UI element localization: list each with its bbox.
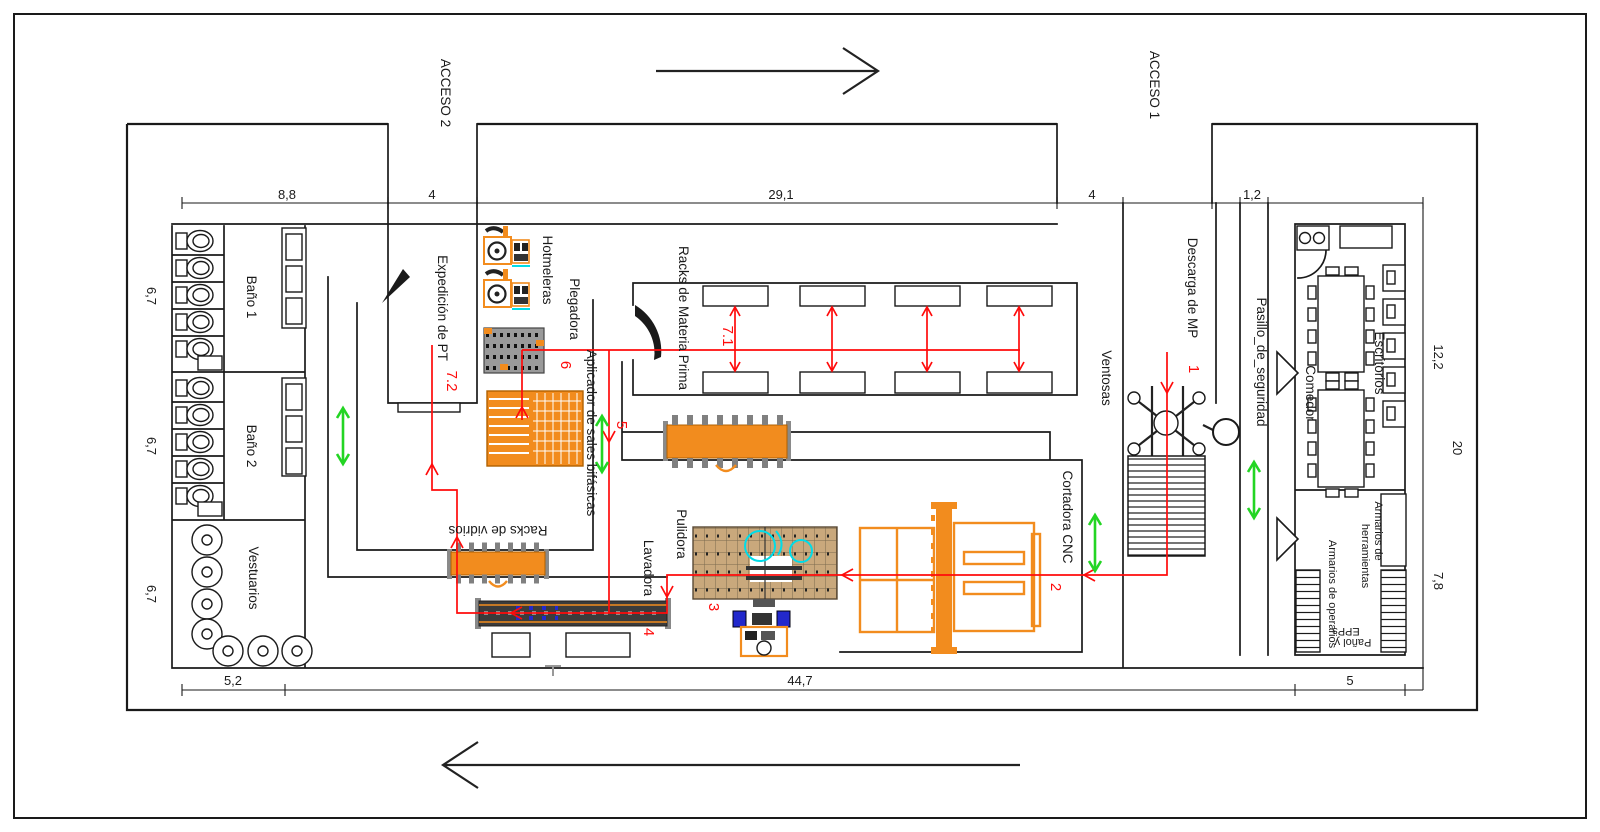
- panol-label-2: EPPs: [1332, 625, 1360, 637]
- dim-left-1: 6,7: [144, 437, 159, 455]
- dim-right-0: 12,2: [1431, 344, 1446, 369]
- expedicion-label: Expedición de PT: [435, 255, 450, 361]
- dim-top-3: 4: [1088, 187, 1095, 202]
- dim-top-2: 29,1: [768, 187, 793, 202]
- step-label-4: 4: [640, 628, 657, 636]
- step-label-7-1: 7.1: [719, 326, 736, 347]
- pulidora-label: Pulidora: [674, 509, 689, 559]
- acceso-1-label: ACCESO 1: [1147, 51, 1162, 119]
- armarios-herramientas-label-1: Armarios de: [1372, 501, 1384, 560]
- dim-top-4: 1,2: [1243, 187, 1261, 202]
- aplicador-label: Aplicador de sales bifásicas: [584, 350, 599, 517]
- dim-top-1: 4: [428, 187, 435, 202]
- ventosas-label: Ventosas: [1099, 350, 1114, 406]
- aplicador-machine: [487, 391, 583, 466]
- hotmeleras-label: Hotmeleras: [540, 235, 555, 304]
- bano1-label: Baño 1: [244, 276, 259, 319]
- comedor-label: Comedor: [1303, 365, 1318, 421]
- racks-mp-label: Racks de Materia Prima: [676, 246, 691, 391]
- plegadora-label: Plegadora: [567, 278, 582, 340]
- step-label-1: 1: [1185, 365, 1202, 373]
- dim-right-1: 20: [1450, 441, 1465, 455]
- descarga-label: Descarga de MP: [1185, 238, 1200, 339]
- armarios-herramientas-label-2: herramientas: [1359, 524, 1371, 589]
- dim-right-2: 7,8: [1431, 572, 1446, 590]
- dim-left-0: 6,7: [144, 287, 159, 305]
- bano2-label: Baño 2: [244, 425, 259, 468]
- step-label-7-2: 7.2: [443, 371, 460, 392]
- dim-top-0: 8,8: [278, 187, 296, 202]
- comedor-table: [1318, 390, 1364, 487]
- step-label-2: 2: [1047, 583, 1064, 591]
- operator-lockers: [1296, 570, 1320, 652]
- dim-left-2: 6,7: [144, 585, 159, 603]
- dim-bottom-1: 44,7: [787, 673, 812, 688]
- dim-bottom-0: 5,2: [224, 673, 242, 688]
- acceso-2-label: ACCESO 2: [438, 59, 453, 127]
- pasillo-label: Pasillo_de_seguridad: [1254, 297, 1269, 426]
- dim-bottom-2: 5: [1346, 673, 1353, 688]
- floor-plan-canvas: 1 2 3 4 5 6 7.1 7.2 ACCESO 2 ACCESO 1 Ba…: [0, 0, 1600, 832]
- tool-lockers: [1381, 570, 1406, 652]
- cortadora-label: Cortadora CNC: [1060, 470, 1075, 563]
- floor-plan-drawing: 1 2 3 4 5 6 7.1 7.2 ACCESO 2 ACCESO 1 Ba…: [0, 0, 1600, 832]
- comedor-table: [1318, 276, 1364, 372]
- kitchenette-counter: [1340, 226, 1392, 248]
- escritorios-label: Escritorios: [1372, 331, 1387, 394]
- step-label-5: 5: [613, 421, 630, 429]
- lavadora-label: Lavadora: [641, 540, 656, 597]
- racks-vidrios-label: Racks de vidrios: [448, 523, 547, 538]
- vestuarios-label: Vestuarios: [246, 546, 261, 609]
- step-label-3: 3: [705, 603, 722, 611]
- step-label-6: 6: [557, 361, 574, 369]
